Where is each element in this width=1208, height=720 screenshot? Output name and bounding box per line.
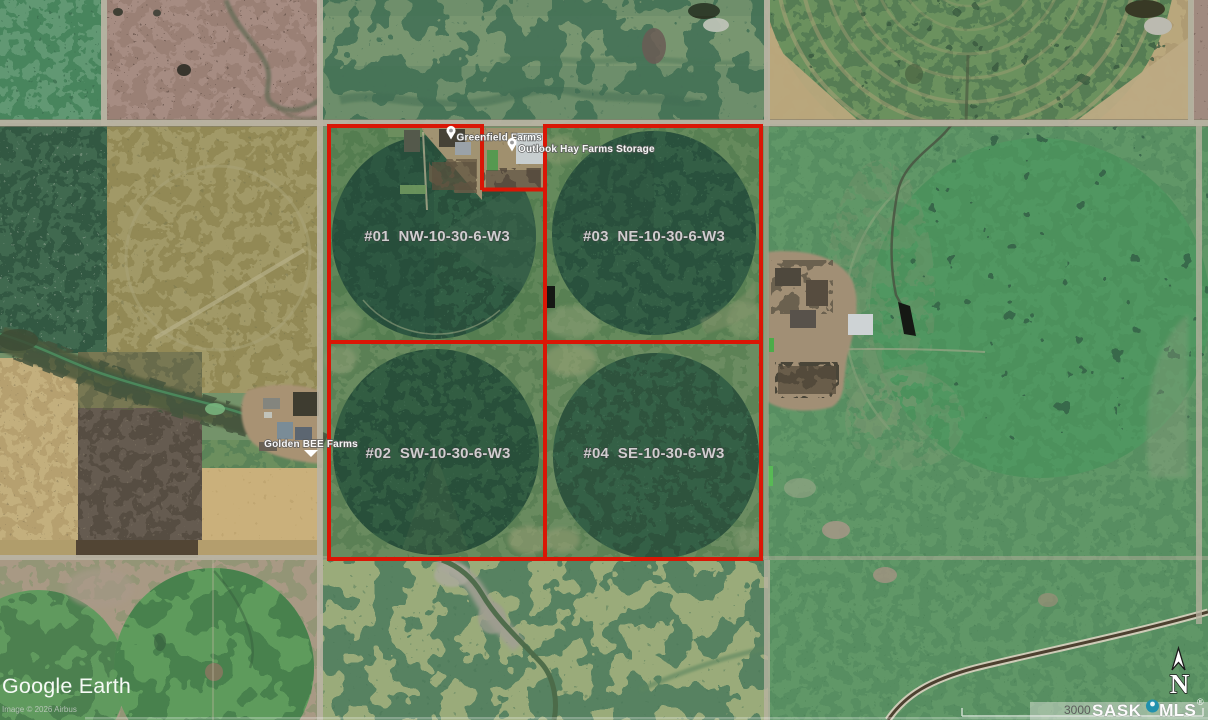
svg-text:®: ®: [1197, 697, 1204, 707]
svg-text:SASK: SASK: [1092, 701, 1142, 720]
svg-text:#01 NW-10-30-6-W3: #01 NW-10-30-6-W3: [364, 228, 510, 245]
svg-text:Golden BEE Farms: Golden BEE Farms: [264, 439, 358, 450]
svg-text:Greenfield Farms: Greenfield Farms: [457, 133, 543, 144]
svg-text:Outlook Hay Farms Storage: Outlook Hay Farms Storage: [518, 144, 655, 155]
svg-text:Google Earth: Google Earth: [2, 674, 131, 698]
svg-text:3000: 3000: [1064, 703, 1091, 717]
svg-text:#03 NE-10-30-6-W3: #03 NE-10-30-6-W3: [583, 228, 725, 245]
svg-text:#02 SW-10-30-6-W3: #02 SW-10-30-6-W3: [365, 445, 510, 462]
svg-text:MLS: MLS: [1159, 700, 1196, 720]
svg-text:#04 SE-10-30-6-W3: #04 SE-10-30-6-W3: [583, 445, 724, 462]
svg-text:N: N: [1170, 669, 1190, 699]
svg-text:Image © 2026 Airbus: Image © 2026 Airbus: [2, 705, 77, 714]
